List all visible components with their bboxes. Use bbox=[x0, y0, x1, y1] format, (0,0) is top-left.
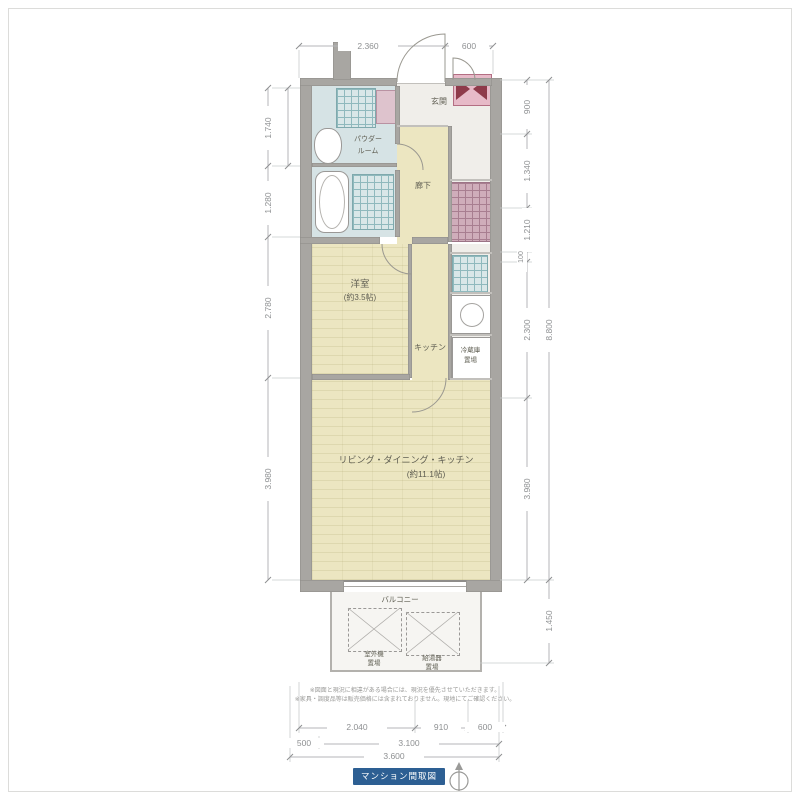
dim-bottom-r3-1: 3.600 bbox=[364, 751, 424, 761]
entrance-step-line bbox=[397, 125, 448, 127]
washing-machine-icon bbox=[336, 88, 376, 128]
outdoor-unit-label-1: 室外機 bbox=[350, 651, 398, 658]
floorplan-image: 冷蔵庫 置場 bbox=[0, 0, 800, 800]
bedroom-label: 洋室 bbox=[336, 280, 384, 290]
wall-bottom-b bbox=[466, 580, 502, 592]
dim-left-3: 2.780 bbox=[263, 286, 273, 330]
utility-divider-4 bbox=[450, 378, 492, 380]
balcony-label: バルコニー bbox=[370, 596, 430, 604]
fridge-space-box: 冷蔵庫 置場 bbox=[452, 337, 491, 379]
wall-bath-bottom-b bbox=[412, 237, 448, 244]
bathtub-icon bbox=[315, 171, 349, 233]
toilet-icon bbox=[314, 128, 342, 164]
outdoor-unit-label-2: 置場 bbox=[350, 660, 398, 667]
wall-powder-bath bbox=[312, 163, 397, 167]
water-heater-label-1: 給湯器 bbox=[408, 655, 456, 662]
washbasin-bowl bbox=[460, 303, 484, 327]
window-glass-line bbox=[344, 586, 466, 587]
wall-bedroom-strip bbox=[408, 244, 412, 378]
dim-bottom-r1-3: 600 bbox=[465, 722, 505, 732]
utility-divider-2 bbox=[450, 292, 492, 294]
powder-room-label-1: パウダー bbox=[340, 136, 396, 144]
wall-bedroom-ldk bbox=[312, 374, 410, 380]
disclaimer-line-1: ※図面と現況に相違がある場合には、現況を優先させていただきます。 bbox=[290, 687, 520, 696]
dim-top-1: 2.360 bbox=[338, 41, 398, 51]
ldk-size-label: (約11.1帖) bbox=[398, 470, 454, 479]
dim-right-4: 100 bbox=[517, 242, 527, 272]
wall-top-b bbox=[445, 78, 492, 86]
entrance-door-threshold bbox=[397, 83, 445, 84]
dim-right-2: 1.340 bbox=[522, 149, 532, 193]
storage-divider bbox=[450, 179, 492, 181]
wall-bottom-a bbox=[300, 580, 344, 592]
water-heater-label-2: 置場 bbox=[408, 664, 456, 671]
dim-bottom-r1-2: 910 bbox=[421, 722, 461, 732]
kitchen-strip-floor bbox=[412, 244, 448, 380]
hallway-label: 廊下 bbox=[408, 182, 438, 191]
dim-right-1: 900 bbox=[522, 85, 532, 129]
dim-top-2: 600 bbox=[449, 41, 489, 51]
disclaimer-line-2: ※家具・調度品等は販売価格には含まれておりません。現地にてご確認ください。 bbox=[285, 696, 525, 705]
powder-room-label-2: ルーム bbox=[340, 148, 396, 156]
dim-left-1: 1.740 bbox=[263, 106, 273, 150]
dim-bottom-r2-1: 500 bbox=[284, 738, 324, 748]
fridge-space-label-1: 冷蔵庫 bbox=[453, 347, 488, 354]
bathtub-inner bbox=[319, 175, 345, 229]
dim-right-overall-1: 8.800 bbox=[544, 308, 554, 352]
ldk-label: リビング・ダイニング・キッチン bbox=[320, 456, 492, 466]
wall-strip-utility bbox=[448, 244, 452, 380]
kitchen-label: キッチン bbox=[406, 344, 454, 353]
washer-space-icon bbox=[452, 255, 488, 293]
utility-divider-3 bbox=[450, 334, 492, 336]
ldk-floor bbox=[312, 380, 490, 580]
wall-left bbox=[300, 78, 312, 592]
shower-tile-icon bbox=[352, 174, 394, 230]
dim-bottom-r1-1: 2.040 bbox=[327, 722, 387, 732]
dim-left-2: 1.280 bbox=[263, 181, 273, 225]
wall-bath-bottom-a bbox=[300, 237, 380, 244]
washbasin-icon bbox=[451, 295, 492, 334]
entrance-label: 玄関 bbox=[424, 98, 454, 107]
outdoor-unit-box bbox=[348, 608, 402, 652]
dim-left-4: 3.980 bbox=[263, 457, 273, 501]
wall-hall-left-b bbox=[395, 170, 400, 237]
bedroom-floor bbox=[312, 244, 408, 374]
dim-right-6: 3.980 bbox=[522, 467, 532, 511]
shoe-storage-icon bbox=[450, 182, 494, 242]
bedroom-size-label: (約3.5帖) bbox=[330, 294, 390, 303]
utility-divider-1 bbox=[450, 252, 492, 254]
fridge-space-label-2: 置場 bbox=[453, 357, 488, 364]
water-heater-box bbox=[406, 612, 460, 656]
dim-right-5: 2.300 bbox=[522, 308, 532, 352]
dim-right-overall-2: 1.450 bbox=[544, 599, 554, 643]
footer-banner: マンション間取図 bbox=[353, 768, 445, 785]
wall-entrance-right bbox=[448, 126, 452, 242]
dim-bottom-r2-2: 3.100 bbox=[379, 738, 439, 748]
